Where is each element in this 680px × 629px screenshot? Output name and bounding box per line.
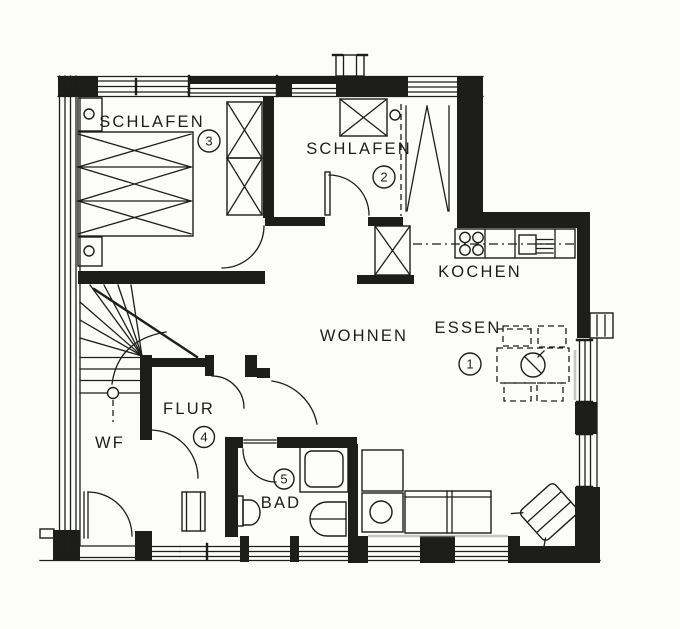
side-table-icon [362, 450, 403, 491]
room-label-essen: ESSEN [435, 319, 502, 337]
door-arc-icon [272, 381, 317, 424]
door-arc-icon [325, 172, 369, 215]
sill-tab [40, 529, 54, 538]
svg-text:5: 5 [280, 472, 287, 487]
room-label-wf: WF [95, 434, 125, 452]
room-label-schlafen-2: SCHLAFEN [306, 140, 412, 158]
bathtub-icon [310, 502, 346, 536]
room-number-badge: 4 [194, 427, 215, 448]
wardrobe-icon [227, 102, 262, 215]
dining-table-icon [497, 329, 569, 383]
room-label-bad: BAD [261, 494, 302, 512]
window-icon [368, 547, 420, 557]
door-arc-icon [212, 376, 244, 408]
svg-text:3: 3 [205, 134, 212, 149]
shower-icon [300, 446, 348, 492]
door-arc-icon [222, 226, 264, 268]
chair-icon [504, 383, 531, 401]
armchair-icon [511, 479, 582, 549]
window-icon [152, 547, 180, 557]
room-label-kochen: KOCHEN [438, 263, 522, 281]
room-number-badge: 2 [373, 166, 395, 188]
left-wall [60, 76, 81, 558]
room-label-flur: FLUR [163, 400, 215, 418]
room-number-badge: 1 [459, 353, 481, 375]
window-icon [577, 340, 592, 402]
window-icon [188, 76, 278, 96]
window-icon [249, 547, 290, 557]
chair-icon [537, 383, 563, 401]
window-icon [299, 547, 348, 557]
fridge-icon [375, 226, 410, 275]
window-icon [577, 434, 592, 487]
bed-icon [78, 132, 193, 236]
door-arc-icon [84, 492, 132, 538]
floor-plan: SCHLAFEN 3 SCHLAFEN 2 KOCHEN ESSEN 1 WOH… [0, 0, 680, 629]
door-arc-icon [243, 440, 276, 482]
window-sill-box [590, 313, 613, 338]
newel-post-icon [108, 388, 119, 399]
wardrobe-icon [401, 104, 449, 216]
room-number-badge: 3 [198, 130, 220, 152]
room-label-schlafen-3: SCHLAFEN [99, 113, 205, 131]
window-icon [408, 82, 457, 92]
nightstand-icon [78, 237, 102, 266]
window-icon [98, 79, 188, 94]
drainboard-icon [537, 240, 553, 254]
svg-text:2: 2 [380, 170, 387, 185]
svg-text:4: 4 [200, 430, 207, 445]
side-table-icon [362, 493, 403, 532]
sofa-icon [405, 491, 491, 533]
svg-text:1: 1 [466, 357, 473, 372]
window-icon [455, 547, 508, 557]
room-label-wohnen: WOHNEN [320, 327, 408, 345]
room-number-badge: 5 [274, 469, 294, 489]
window-icon [292, 76, 336, 93]
duct-niche [182, 492, 205, 531]
kitchen-counter [413, 229, 575, 258]
wardrobe-icon [340, 99, 400, 136]
door-arc-icon [150, 430, 198, 478]
window-icon [180, 544, 240, 559]
chair-icon [538, 326, 566, 347]
chimney-icon [333, 55, 367, 97]
